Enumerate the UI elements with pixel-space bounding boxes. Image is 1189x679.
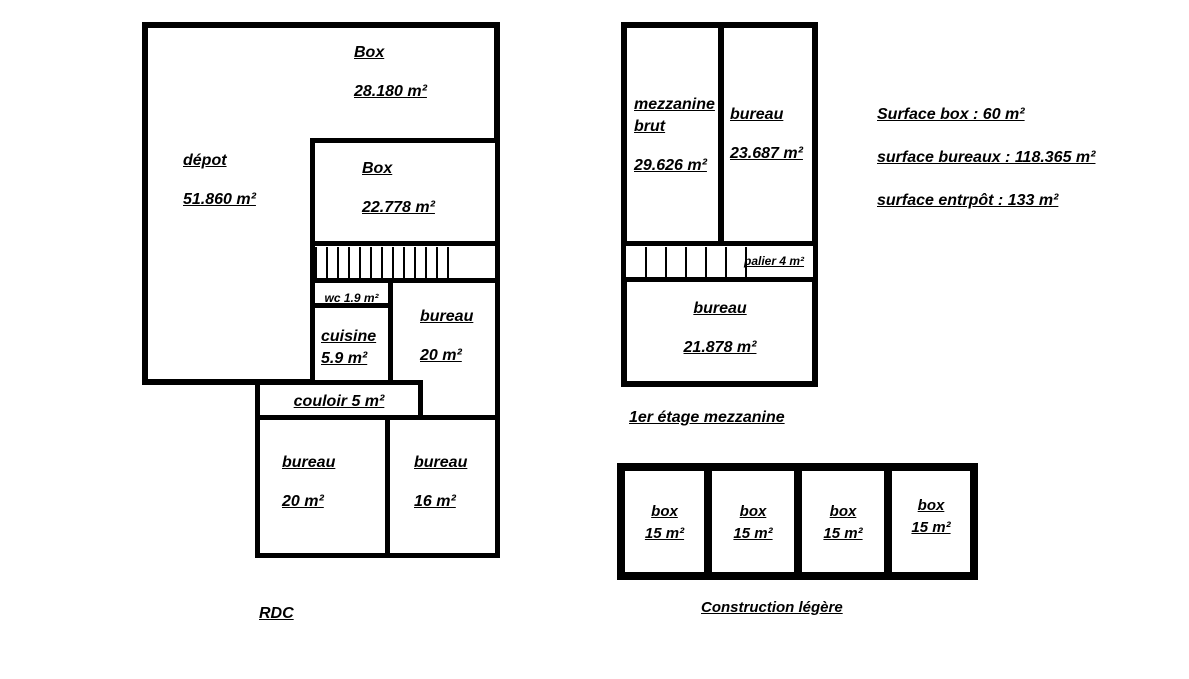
rdc-cuisine-label: cuisine 5.9 m² [321, 326, 376, 370]
construction-box-3-label: box 15 m² [802, 501, 884, 545]
room-area: 22.778 m² [362, 197, 435, 219]
room-name: bureau [420, 306, 473, 328]
rdc-box-top-label: Box 28.180 m² [354, 42, 427, 103]
surface-box-line: Surface box : 60 m² [877, 104, 1095, 126]
mezzanine-palier-label: palier 4 m² [744, 250, 804, 272]
construction-box-1-label: box 15 m² [625, 501, 704, 545]
rdc-wc-label: wc 1.9 m² [311, 287, 392, 309]
room-name: box [802, 501, 884, 523]
room-name: box [712, 501, 794, 523]
rdc-plan-title: RDC [259, 603, 294, 625]
mezzanine-plan-title: 1er étage mezzanine [629, 407, 785, 429]
room-area: 16 m² [414, 491, 467, 513]
rdc-bureau-top-label: bureau 20 m² [420, 306, 473, 367]
surface-entrepot-line: surface entrpôt : 133 m² [877, 190, 1095, 212]
room-name: box [625, 501, 704, 523]
rdc-bureau-bl-label: bureau 20 m² [282, 452, 335, 513]
rdc-couloir-label: couloir 5 m² [255, 391, 423, 413]
room-name: dépot [183, 150, 256, 172]
room-name: cuisine [321, 326, 376, 348]
room-name: bureau [627, 298, 813, 320]
construction-divider-wall-3 [884, 471, 892, 572]
room-name: mezzanine brut [634, 94, 722, 138]
room-area: 15 m² [625, 523, 704, 545]
surface-bureaux-line: surface bureaux : 118.365 m² [877, 147, 1095, 169]
construction-divider-wall-1 [704, 471, 712, 572]
construction-divider-wall-2 [794, 471, 802, 572]
mezzanine-brut-label: mezzanine brut 29.626 m² [634, 94, 722, 177]
room-area: 15 m² [802, 523, 884, 545]
room-area: 15 m² [712, 523, 794, 545]
mezzanine-bureau-right-label: bureau 23.687 m² [730, 104, 803, 165]
room-area: 15 m² [892, 517, 970, 539]
room-area: 20 m² [282, 491, 335, 513]
room-name: bureau [730, 104, 803, 126]
floor-plan-canvas: Box 28.180 m² dépot 51.860 m² Box 22.778… [0, 0, 1189, 679]
room-area: 20 m² [420, 345, 473, 367]
room-area: 28.180 m² [354, 81, 427, 103]
rdc-box-inner-label: Box 22.778 m² [362, 158, 435, 219]
room-name: box [892, 495, 970, 517]
construction-box-4-label: box 15 m² [892, 495, 970, 539]
room-name: bureau [282, 452, 335, 474]
room-name: Box [362, 158, 435, 180]
rdc-stairs-treads [315, 247, 457, 278]
rdc-depot-label: dépot 51.860 m² [183, 150, 256, 211]
room-name: Box [354, 42, 427, 64]
surface-summary: Surface box : 60 m² surface bureaux : 11… [877, 104, 1095, 233]
construction-box-2-label: box 15 m² [712, 501, 794, 545]
room-name: bureau [414, 452, 467, 474]
construction-title: Construction légère [701, 597, 843, 619]
room-area: 29.626 m² [634, 155, 722, 177]
room-area: 51.860 m² [183, 189, 256, 211]
rdc-bureau-br-label: bureau 16 m² [414, 452, 467, 513]
room-area: 21.878 m² [627, 337, 813, 359]
room-area: 23.687 m² [730, 143, 803, 165]
mezzanine-bureau-bottom-label: bureau 21.878 m² [627, 298, 813, 359]
room-area: 5.9 m² [321, 348, 376, 370]
mezzanine-stairs-treads [627, 247, 749, 277]
